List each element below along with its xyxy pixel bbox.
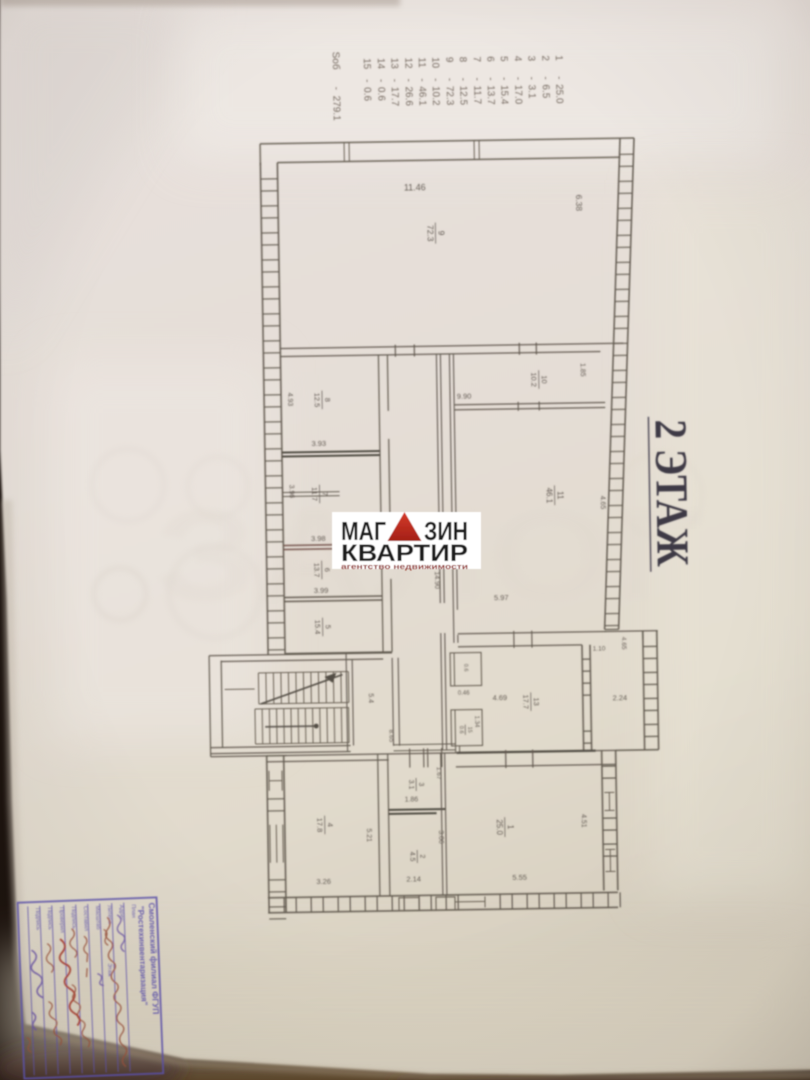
svg-text:Sоб-279.1: Sоб-279.1 (330, 52, 343, 122)
svg-text:25.0: 25.0 (495, 819, 504, 835)
svg-text:1.86: 1.86 (405, 796, 419, 803)
svg-text:6.38: 6.38 (574, 195, 584, 212)
svg-text:4.65: 4.65 (620, 637, 627, 650)
svg-text:12.5: 12.5 (313, 393, 322, 408)
svg-text:7: 7 (321, 492, 330, 496)
svg-text:17.7: 17.7 (521, 694, 530, 709)
svg-text:5: 5 (324, 625, 333, 629)
svg-text:9: 9 (436, 231, 446, 236)
svg-text:1.34: 1.34 (473, 716, 479, 728)
svg-text:14-0.6: 14-0.6 (375, 58, 387, 102)
svg-text:Подпись: Подпись (70, 906, 77, 928)
svg-text:Подпись: Подпись (34, 908, 41, 930)
svg-text:Проверил: Проверил (58, 907, 65, 933)
svg-text:5.55: 5.55 (512, 873, 527, 882)
svg-text:0.46: 0.46 (458, 691, 470, 697)
svg-text:агентство недвижимости: агентство недвижимости (341, 562, 468, 571)
svg-text:4.5: 4.5 (408, 852, 415, 862)
svg-text:4.65: 4.65 (599, 496, 606, 510)
svg-text:17.8: 17.8 (315, 818, 324, 833)
svg-text:11.46: 11.46 (404, 182, 426, 192)
svg-text:1.67: 1.67 (435, 767, 442, 780)
svg-text:11: 11 (556, 491, 565, 500)
svg-text:1.85: 1.85 (579, 363, 586, 377)
svg-text:10.2: 10.2 (529, 372, 538, 387)
svg-text:3.06: 3.06 (437, 830, 444, 844)
svg-text:3.98: 3.98 (311, 534, 326, 543)
svg-text:9.90: 9.90 (457, 392, 472, 401)
svg-text:План: План (130, 904, 137, 918)
svg-text:4.69: 4.69 (492, 693, 507, 702)
svg-text:5.4: 5.4 (367, 693, 374, 703)
svg-text:2.14: 2.14 (406, 874, 421, 883)
svg-text:13.7: 13.7 (312, 563, 321, 578)
svg-text:15: 15 (466, 727, 472, 733)
svg-text:Подпись: Подпись (46, 907, 53, 929)
svg-text:13: 13 (532, 697, 541, 705)
svg-text:4.93: 4.93 (286, 393, 293, 407)
svg-text:1.10: 1.10 (593, 645, 606, 652)
svg-text:3.26: 3.26 (316, 877, 331, 886)
svg-text:6: 6 (323, 568, 332, 572)
svg-text:2.24: 2.24 (612, 693, 627, 702)
svg-text:8.65: 8.65 (387, 729, 394, 742)
svg-text:1: 1 (506, 825, 515, 830)
svg-text:3.99: 3.99 (314, 586, 329, 595)
svg-text:Масштаб: Масштаб (94, 906, 101, 930)
svg-text:11.7: 11.7 (310, 487, 319, 501)
svg-text:4.51: 4.51 (580, 814, 587, 828)
svg-text:10: 10 (540, 375, 549, 383)
svg-text:Составил: Составил (82, 906, 89, 931)
svg-text:0.6: 0.6 (458, 726, 464, 734)
svg-text:2 ЭТАЖ: 2 ЭТАЖ (645, 419, 698, 567)
svg-text:4: 4 (326, 823, 335, 827)
svg-text:8: 8 (323, 398, 332, 402)
svg-text:3.1: 3.1 (407, 780, 414, 790)
svg-text:3: 3 (417, 782, 424, 786)
svg-text:3.93: 3.93 (311, 439, 326, 448)
svg-text:3.96: 3.96 (287, 485, 294, 499)
svg-text:15.4: 15.4 (313, 620, 322, 635)
svg-text:2: 2 (418, 854, 425, 858)
svg-text:14.90: 14.90 (433, 571, 440, 589)
svg-text:5.21: 5.21 (365, 828, 372, 842)
svg-text:0.6: 0.6 (462, 664, 468, 672)
svg-text:5.97: 5.97 (494, 593, 509, 602)
svg-text:46.1: 46.1 (545, 487, 554, 503)
svg-text:15-0.6: 15-0.6 (361, 58, 373, 102)
svg-text:72.3: 72.3 (425, 225, 435, 242)
